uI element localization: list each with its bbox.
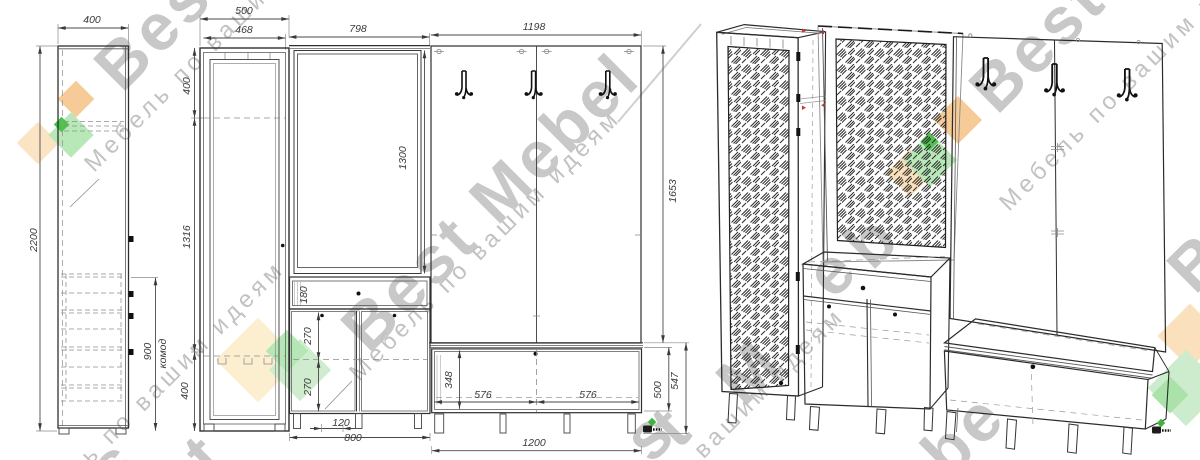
svg-text:1300: 1300 xyxy=(397,146,409,170)
svg-text:1198: 1198 xyxy=(523,21,546,33)
svg-text:500: 500 xyxy=(235,5,253,17)
svg-text:120: 120 xyxy=(332,417,350,429)
svg-text:500: 500 xyxy=(652,381,664,399)
svg-text:2200: 2200 xyxy=(28,228,40,253)
svg-text:комод: комод xyxy=(157,338,169,368)
svg-text:798: 798 xyxy=(349,23,367,35)
svg-text:900: 900 xyxy=(142,343,154,361)
svg-text:400: 400 xyxy=(181,77,193,95)
svg-text:468: 468 xyxy=(235,24,253,36)
svg-text:348: 348 xyxy=(443,371,455,389)
svg-text:400: 400 xyxy=(83,14,101,26)
svg-text:1316: 1316 xyxy=(181,225,193,249)
svg-text:576: 576 xyxy=(474,389,492,401)
svg-text:1200: 1200 xyxy=(522,437,546,449)
svg-text:270: 270 xyxy=(302,378,314,397)
svg-text:400: 400 xyxy=(179,382,191,400)
svg-text:270: 270 xyxy=(302,327,314,346)
svg-text:800: 800 xyxy=(344,432,362,444)
svg-text:180: 180 xyxy=(298,286,310,304)
svg-text:576: 576 xyxy=(579,389,597,401)
svg-text:1653: 1653 xyxy=(667,179,679,203)
svg-text:547: 547 xyxy=(669,371,681,390)
